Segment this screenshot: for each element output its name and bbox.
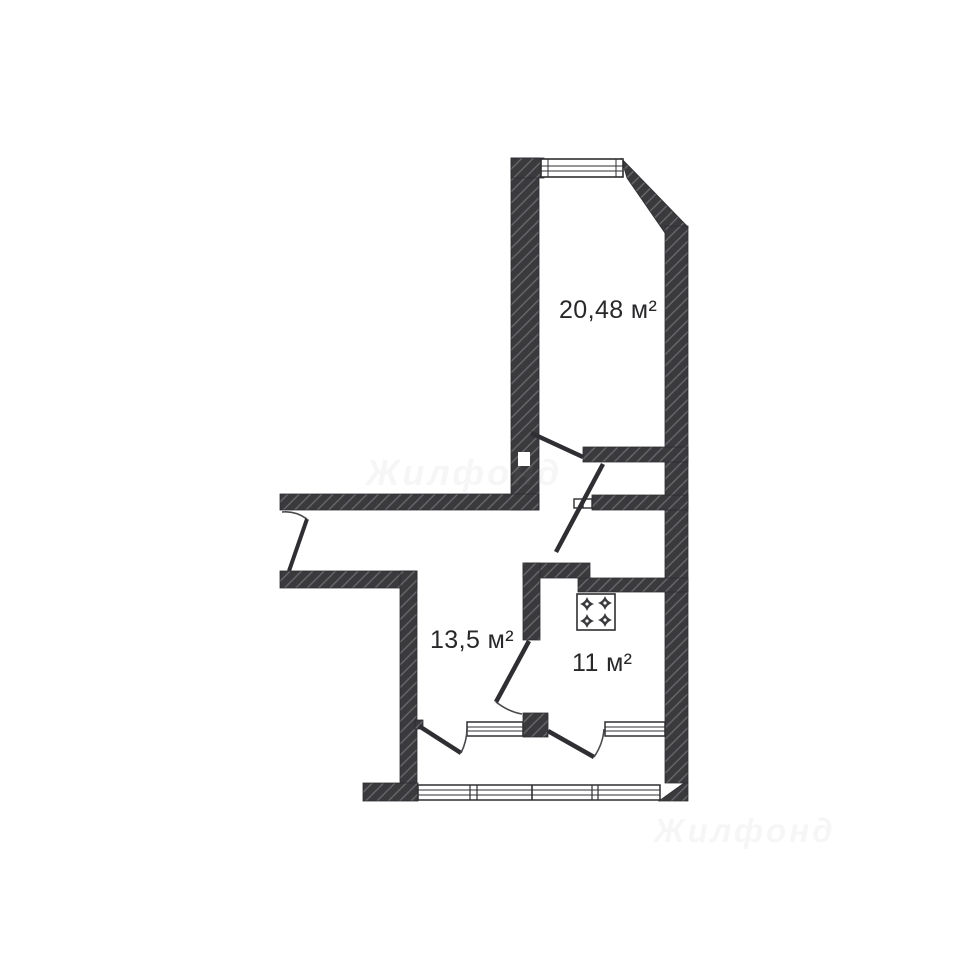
window-room-bottom — [467, 722, 523, 736]
wall-room-left — [400, 571, 417, 783]
wall-partition — [523, 563, 540, 640]
wall-kitchen-top — [578, 578, 688, 592]
doors — [282, 433, 604, 757]
wall-corridor-bottom — [280, 571, 417, 588]
wall-balcony-stub — [523, 713, 548, 737]
door-balcony-right — [548, 729, 604, 757]
floor-plan-drawing — [0, 0, 960, 960]
wall-chamfer — [621, 158, 688, 233]
wall-living-bottom — [583, 447, 688, 462]
window-living-top — [541, 159, 623, 177]
floor-plan-page: 20,48 м² 13,5 м² 11 м² Жилфонд Жилфонд — [0, 0, 960, 960]
window-kitchen-bottom — [605, 722, 665, 736]
area-label-living-room: 20,48 м² — [559, 296, 657, 325]
windows — [418, 159, 665, 800]
wall-right-bottom-corner — [659, 783, 688, 801]
door-balcony-left — [419, 726, 467, 753]
wall-living-top — [511, 158, 544, 178]
area-label-room: 13,5 м² — [430, 626, 514, 655]
area-label-kitchen: 11 м² — [572, 649, 632, 678]
wall-balcony-left — [363, 783, 418, 801]
door-jamb-notch — [518, 452, 530, 466]
door-entrance — [282, 512, 307, 571]
stove-icon — [577, 594, 615, 630]
wall-corridor-top — [280, 494, 539, 510]
walls — [280, 158, 688, 801]
wall-shaft — [592, 495, 688, 510]
window-balcony-glazing — [418, 785, 660, 800]
